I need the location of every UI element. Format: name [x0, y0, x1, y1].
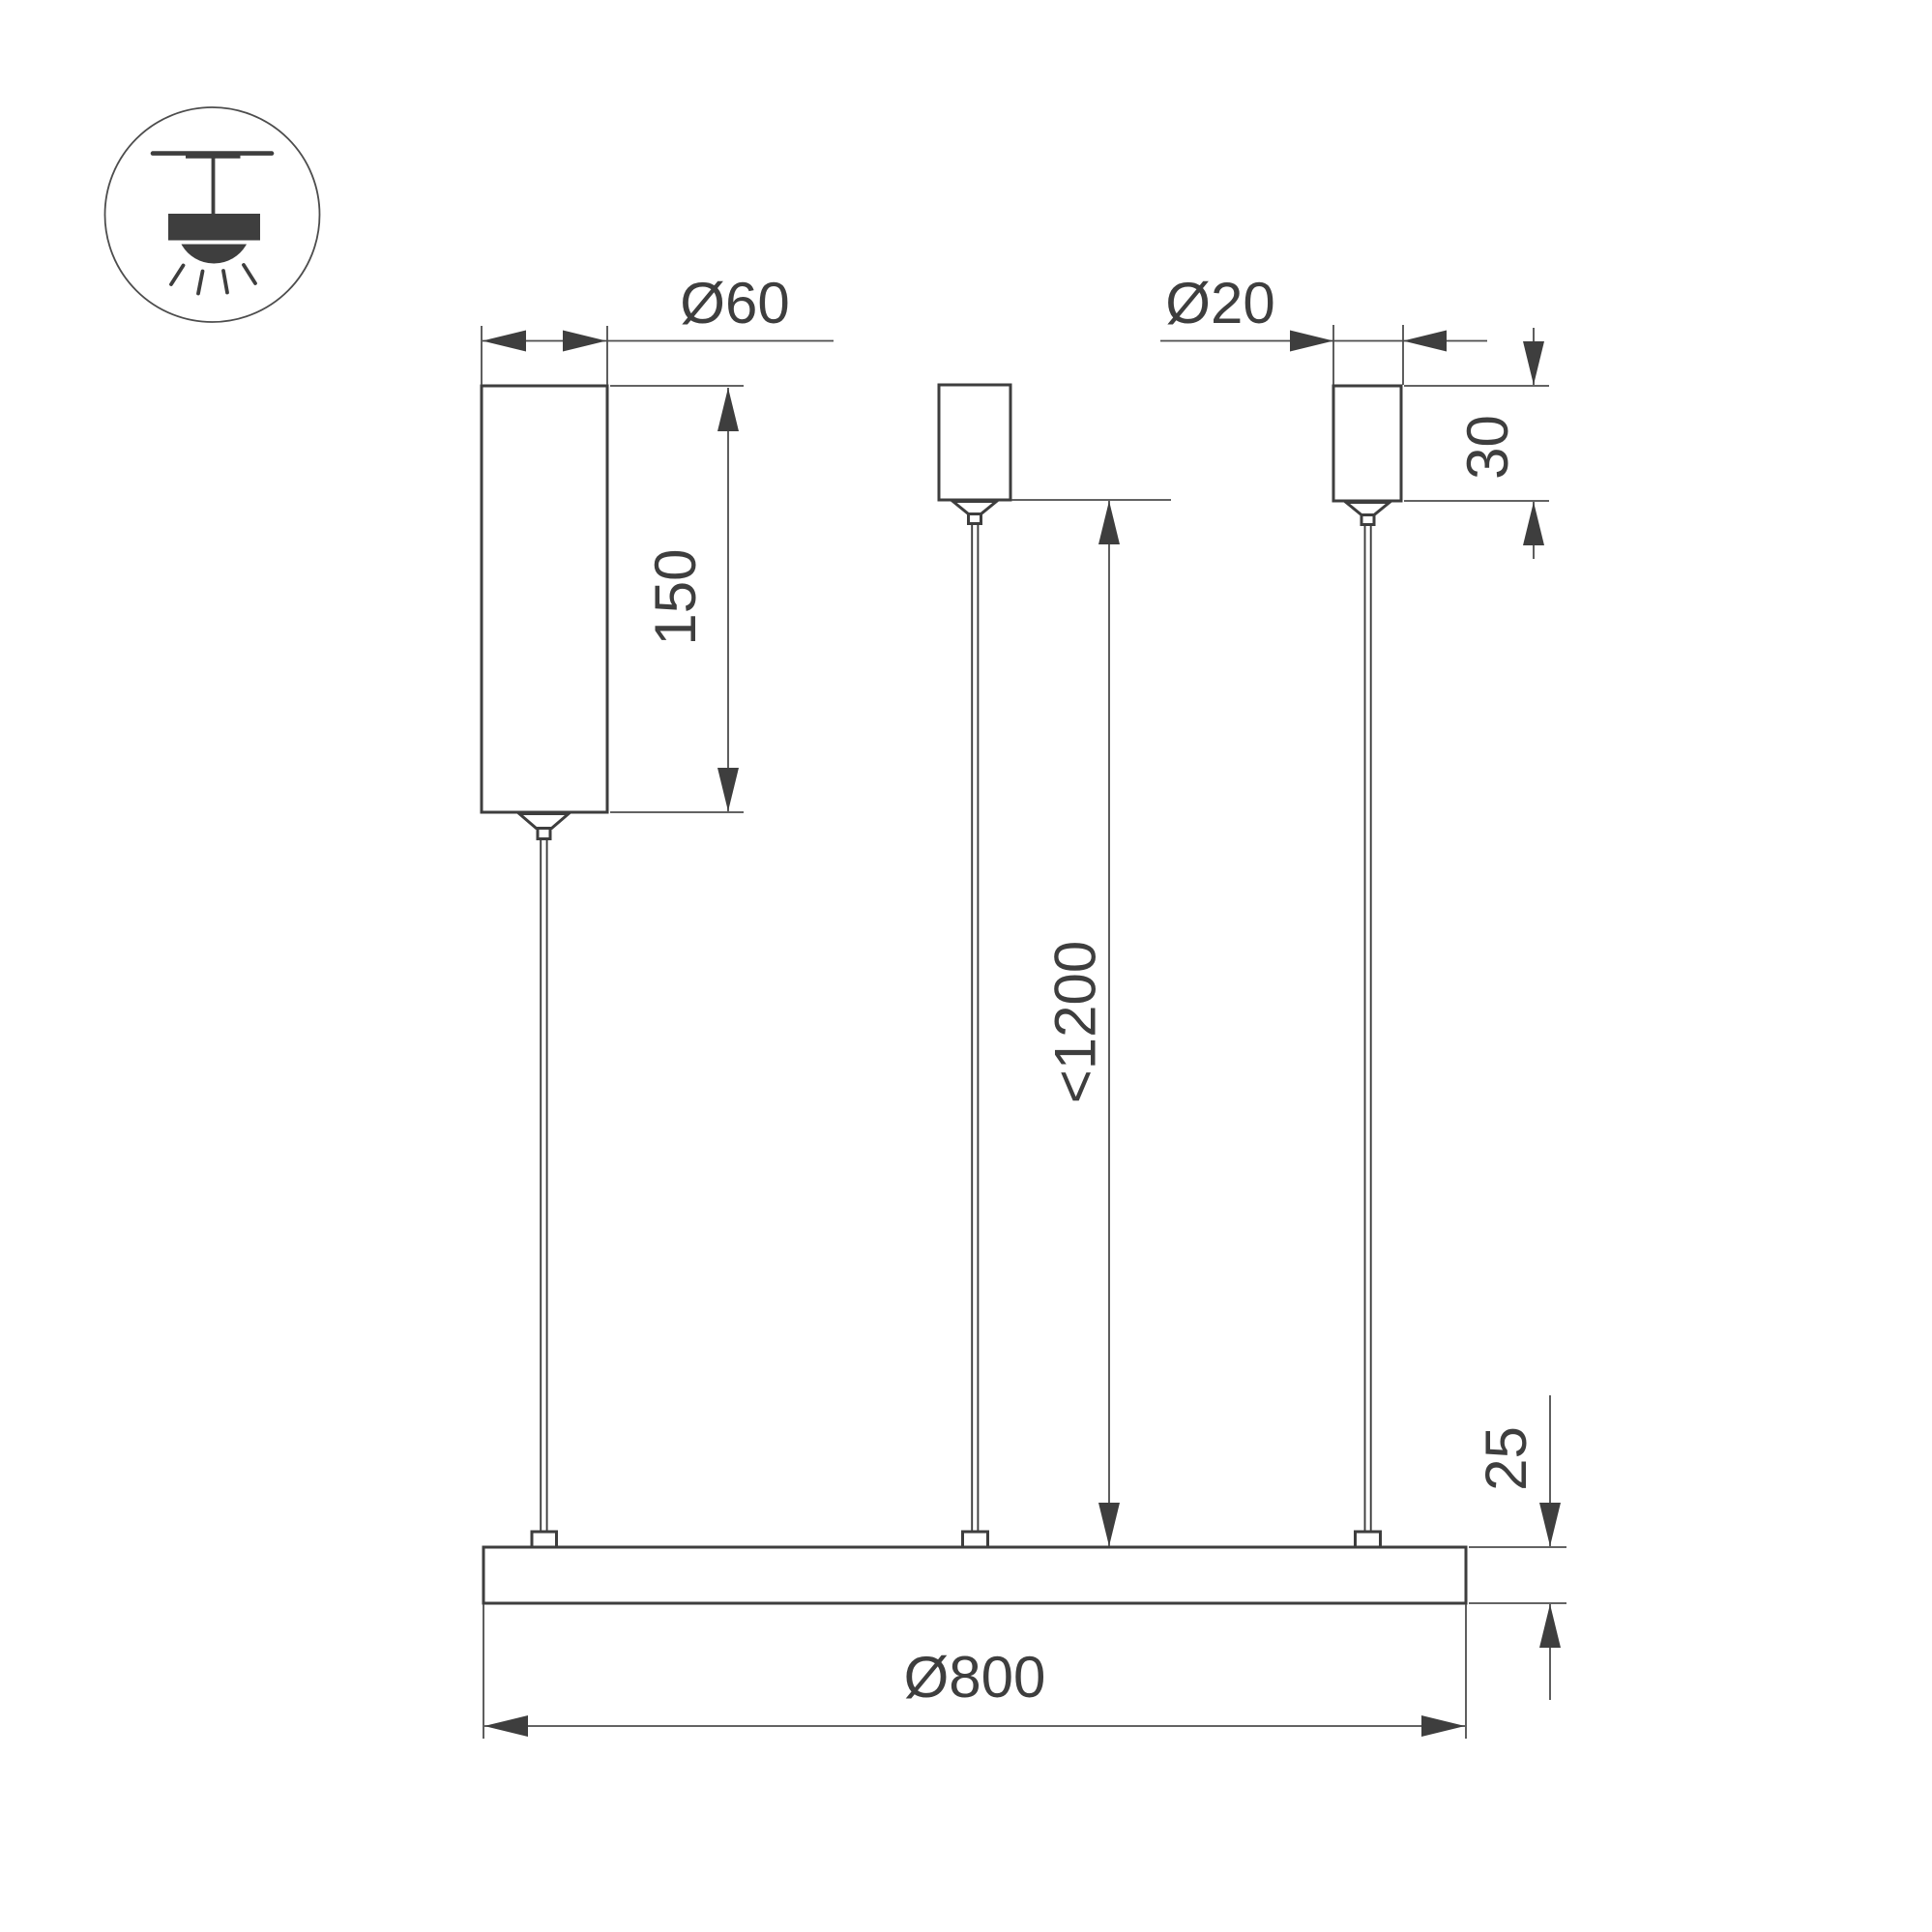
svg-text:150: 150: [643, 548, 708, 645]
svg-text:25: 25: [1474, 1426, 1538, 1491]
svg-text:<1200: <1200: [1042, 941, 1107, 1104]
svg-text:Ø800: Ø800: [904, 1645, 1046, 1710]
svg-text:Ø60: Ø60: [680, 271, 789, 336]
svg-text:Ø20: Ø20: [1165, 271, 1274, 336]
svg-text:30: 30: [1455, 415, 1520, 480]
